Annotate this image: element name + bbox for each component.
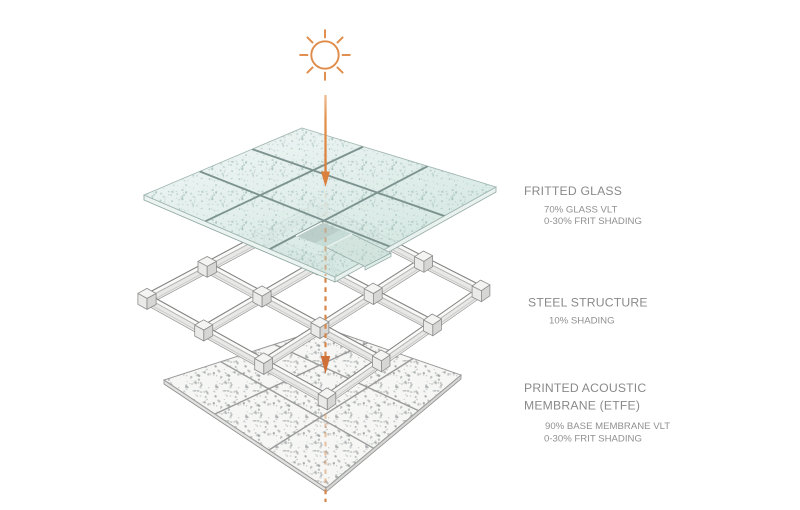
svg-text:90% BASE MEMBRANE VLT: 90% BASE MEMBRANE VLT [545, 421, 670, 432]
svg-text:10% SHADING: 10% SHADING [549, 316, 615, 327]
svg-text:PRINTED ACOUSTIC: PRINTED ACOUSTIC [524, 381, 646, 395]
svg-text:STEEL STRUCTURE: STEEL STRUCTURE [528, 296, 648, 310]
svg-text:MEMBRANE (ETFE): MEMBRANE (ETFE) [524, 399, 640, 413]
svg-text:FRITTED GLASS: FRITTED GLASS [524, 184, 622, 198]
svg-text:0-30% FRIT SHADING: 0-30% FRIT SHADING [544, 216, 642, 227]
svg-text:70% GLASS VLT: 70% GLASS VLT [544, 205, 618, 216]
svg-text:0-30% FRIT SHADING: 0-30% FRIT SHADING [544, 434, 642, 445]
